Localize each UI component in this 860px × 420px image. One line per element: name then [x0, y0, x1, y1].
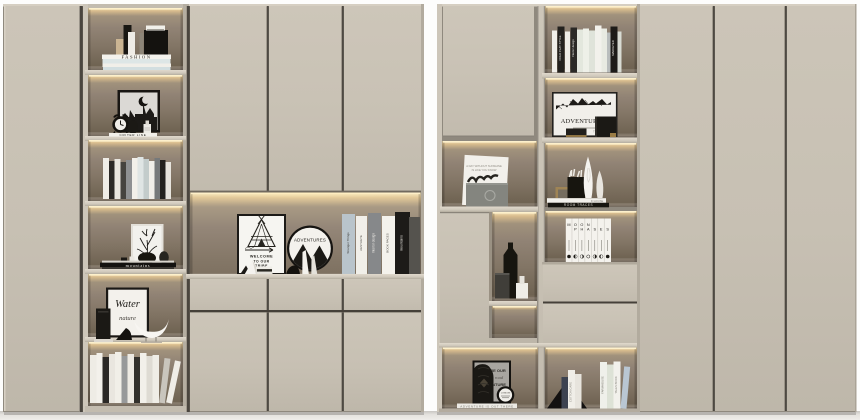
svg-text:Stranger Things: Stranger Things: [346, 232, 350, 254]
svg-text:Water: Water: [115, 299, 141, 310]
svg-text:LONDON: LONDON: [501, 393, 511, 395]
svg-text:FARMHOUSE: FARMHOUSE: [601, 376, 605, 394]
svg-text:TO OUR: TO OUR: [253, 260, 269, 264]
svg-text:Interior design: Interior design: [372, 233, 376, 253]
svg-text:O: O: [580, 223, 583, 227]
svg-text:O: O: [574, 223, 577, 227]
svg-text:H: H: [581, 228, 584, 232]
svg-text:ADVENTURE IS OUT THERE: ADVENTURE IS OUT THERE: [460, 404, 513, 408]
svg-text:road: road: [495, 375, 504, 380]
svg-text:A DAY WITHOUT SUNSHINE: A DAY WITHOUT SUNSHINE: [466, 164, 502, 168]
svg-text:IS LIKE YOU KNOW: IS LIKE YOU KNOW: [472, 168, 497, 172]
svg-text:FASHION: FASHION: [121, 55, 151, 60]
svg-text:mountains: mountains: [400, 235, 404, 251]
svg-text:MARKETER: MARKETER: [611, 40, 615, 56]
svg-text:mountains: mountains: [126, 263, 151, 268]
svg-text:S: S: [606, 228, 609, 232]
svg-text:Interior design: Interior design: [571, 39, 575, 57]
svg-text:CRITER LINE: CRITER LINE: [120, 133, 147, 137]
svg-text:BOOK PAGES: BOOK PAGES: [386, 233, 390, 253]
svg-text:IN HOUSE: IN HOUSE: [591, 199, 604, 203]
svg-text:A: A: [587, 228, 590, 232]
svg-text:COLD PLAY STYLE: COLD PLAY STYLE: [558, 35, 562, 60]
svg-text:COTTON CARE: COTTON CARE: [569, 382, 573, 402]
svg-text:ROOM TRACES: ROOM TRACES: [564, 203, 593, 207]
svg-text:N: N: [587, 223, 590, 227]
svg-text:E: E: [600, 228, 603, 232]
svg-text:nature: nature: [119, 315, 136, 322]
svg-text:TALES BOOK: TALES BOOK: [614, 376, 618, 394]
svg-text:WELCOME: WELCOME: [250, 255, 273, 259]
svg-text:P: P: [574, 228, 577, 232]
svg-text:M: M: [567, 223, 570, 227]
svg-text:AESTHETE: AESTHETE: [359, 235, 363, 251]
svg-text:ADVENTURES: ADVENTURES: [294, 238, 326, 243]
svg-text:NTURE: NTURE: [492, 382, 506, 387]
svg-text:S: S: [594, 228, 597, 232]
